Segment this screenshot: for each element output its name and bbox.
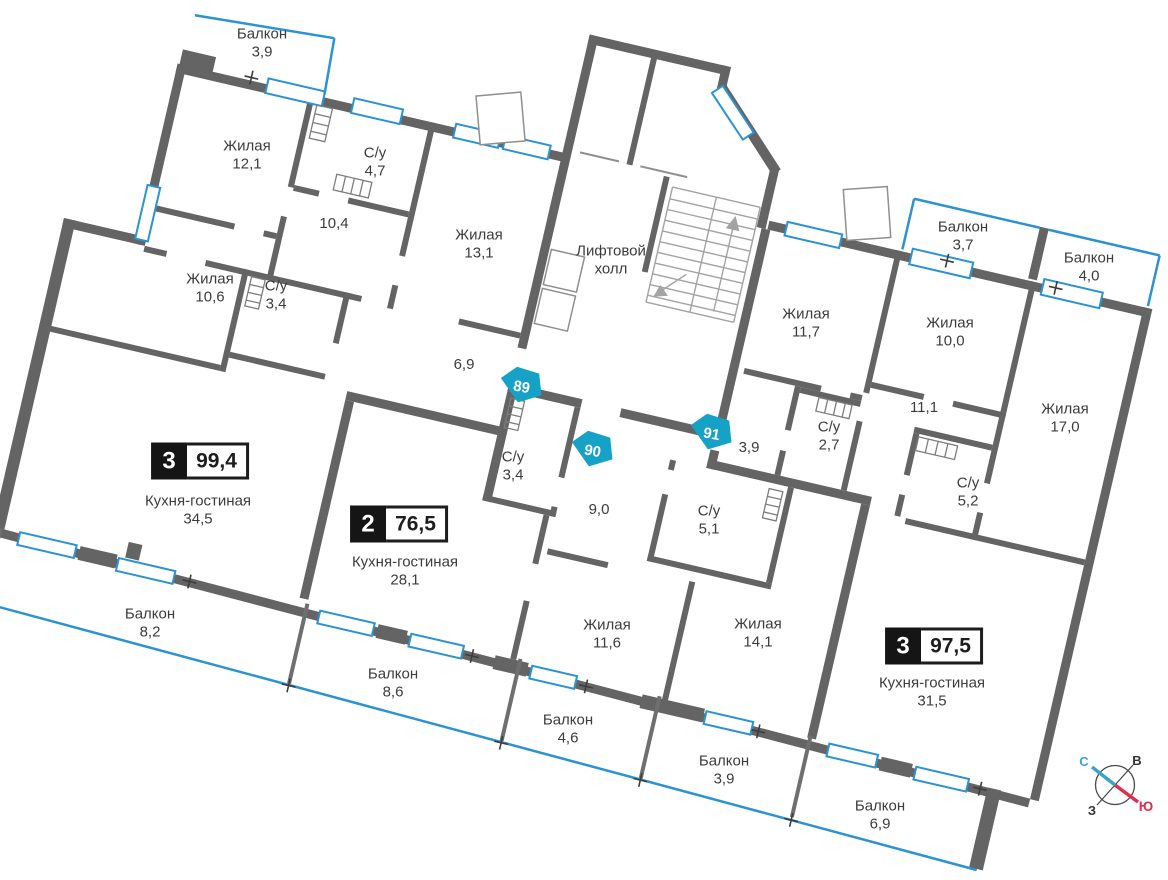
room-label-balcony-3-9-top: Балкон 3,9 [237,26,287,63]
room-name: Жилая [734,616,781,634]
apartment-rooms-count: 3 [885,628,921,665]
window [135,185,160,242]
room-area: 10,0 [926,333,973,351]
room-area: 9,0 [589,501,610,519]
window [785,222,843,248]
room-label-su-3-4-apt89: С/у 3,4 [265,278,288,315]
room-area: 28,1 [352,572,458,590]
room-name: Балкон [855,798,905,816]
window [265,78,325,106]
unit-marker-89[interactable]: 89 [497,364,545,406]
room-label-zhilaya-10-0: Жилая 10,0 [926,315,973,352]
room-area: 4,7 [364,163,387,181]
apartment-total-area: 76,5 [386,506,448,543]
unit-number-91: 91 [702,424,721,444]
room-area: 11,1 [910,399,938,417]
room-area: 10,6 [186,289,233,307]
room-label-zhilaya-17-0: Жилая 17,0 [1041,401,1088,438]
window [913,767,969,792]
corridor-label-6-9: 6,9 [454,356,475,374]
window [826,744,878,768]
room-label-balcony-8-2: Балкон 8,2 [125,606,175,643]
unit-number-89: 89 [512,377,531,397]
room-name: Кухня-гостиная [145,493,251,511]
room-label-balcony-3-9-bottom: Балкон 3,9 [699,753,749,790]
room-area: 3,4 [265,296,288,314]
room-area: 6,9 [454,356,475,374]
room-name: Жилая [223,138,270,156]
room-name: Балкон [237,26,287,44]
room-area: 2,7 [818,437,841,455]
room-area: 31,5 [879,693,985,711]
room-area: 13,1 [455,245,502,263]
stairs [646,187,760,322]
room-label-balcony-4-6: Балкон 4,6 [543,712,593,749]
compass-west-label: З [1088,803,1096,818]
room-name: С/у [364,145,387,163]
room-area: 8,2 [125,624,175,642]
room-label-zhilaya-14-1: Жилая 14,1 [734,616,781,653]
room-label-su-3-4-apt90: С/у 3,4 [502,449,525,486]
room-name: Балкон [543,712,593,730]
corridor-label-10-4: 10,4 [319,215,348,233]
compass-rose: С В З Ю [1079,753,1153,818]
compass-north-label: С [1079,754,1089,769]
room-area: 3,9 [237,44,287,62]
room-label-kitchen-28-1: Кухня-гостиная 28,1 [352,554,458,591]
window [529,666,577,689]
room-area: 5,2 [957,493,980,511]
room-label-kitchen-31-5: Кухня-гостиная 31,5 [879,675,985,712]
apartment-rooms-count: 3 [151,443,187,480]
room-label-zhilaya-13-1: Жилая 13,1 [455,227,502,264]
room-area: 4,6 [543,730,593,748]
room-area: 34,5 [145,511,251,529]
window [116,558,175,584]
room-name: Жилая [583,617,630,635]
room-label-su-2-7: С/у 2,7 [818,419,841,456]
room-name: С/у [818,419,841,437]
apartment-total-area: 97,5 [921,628,983,665]
room-name: С/у [265,278,288,296]
room-label-balcony-6-9: Балкон 6,9 [855,798,905,835]
room-area: 3,4 [502,467,525,485]
room-area: 6,9 [855,816,905,834]
lift-hall-label: Лифтовой холл [576,243,646,280]
room-name: Жилая [1041,401,1088,419]
unit-marker-90[interactable]: 90 [568,428,616,470]
room-area: 12,1 [223,156,270,174]
floor-plan-page: 89 90 91 С В З Ю Балкон 3,9 Жилая 12,1 С… [0,0,1168,880]
room-name: Кухня-гостиная [879,675,985,693]
room-label-balcony-8-6: Балкон 8,6 [368,666,418,703]
room-area: 11,6 [583,635,630,653]
apartment-badge-90[interactable]: 2 76,5 [350,506,448,543]
vent-shaft [476,92,525,145]
apartment-rooms-count: 2 [350,506,386,543]
compass-east-label: В [1132,753,1141,768]
room-label-zhilaya-11-7: Жилая 11,7 [782,306,829,343]
room-name: С/у [957,475,980,493]
apartment-total-area: 99,4 [187,443,249,480]
room-label-zhilaya-12-1: Жилая 12,1 [223,138,270,175]
unit-number-90: 90 [583,441,602,461]
lift-hall-line1: Лифтовой [576,243,646,261]
vent-shafts [476,92,891,240]
corridor-label-11-1: 11,1 [910,399,938,417]
window [317,611,374,636]
room-label-zhilaya-10-6: Жилая 10,6 [186,271,233,308]
room-label-su-5-1: С/у 5,1 [698,503,721,540]
window [17,532,76,558]
room-name: С/у [698,503,721,521]
room-area: 14,1 [734,634,781,652]
room-name: Жилая [455,227,502,245]
room-area: 17,0 [1041,419,1088,437]
room-area: 10,4 [319,215,348,233]
apartment-badge-89[interactable]: 3 99,4 [151,443,249,480]
room-label-kitchen-34-5: Кухня-гостиная 34,5 [145,493,251,530]
room-area: 3,9 [739,439,760,457]
room-label-su-5-2: С/у 5,2 [957,475,980,512]
corridor-label-9-0: 9,0 [589,501,610,519]
vent-shaft [843,187,890,241]
apartment-badge-91[interactable]: 3 97,5 [885,628,983,665]
room-name: С/у [502,449,525,467]
room-area: 8,6 [368,684,418,702]
compass-south-label: Ю [1139,798,1153,814]
window [351,98,403,124]
room-area: 3,9 [699,771,749,789]
lift-hall-line2: холл [576,261,646,279]
room-label-zhilaya-11-6: Жилая 11,6 [583,617,630,654]
room-area: 4,0 [1064,268,1114,286]
room-name: Жилая [926,315,973,333]
room-name: Жилая [782,306,829,324]
room-label-balcony-4-0: Балкон 4,0 [1064,250,1114,287]
room-name: Балкон [368,666,418,684]
room-name: Балкон [125,606,175,624]
room-area: 11,7 [782,324,829,342]
room-name: Балкон [699,753,749,771]
room-name: Балкон [1064,250,1114,268]
window [712,86,754,140]
room-area: 3,7 [938,237,988,255]
room-name: Кухня-гостиная [352,554,458,572]
unit-markers: 89 90 91 [497,364,735,470]
room-area: 5,1 [698,521,721,539]
window [704,711,754,734]
window [408,634,464,659]
corridor-label-3-9: 3,9 [739,439,760,457]
room-name: Балкон [938,219,988,237]
room-label-su-4-7: С/у 4,7 [364,145,387,182]
room-name: Жилая [186,271,233,289]
room-label-balcony-3-7: Балкон 3,7 [938,219,988,256]
